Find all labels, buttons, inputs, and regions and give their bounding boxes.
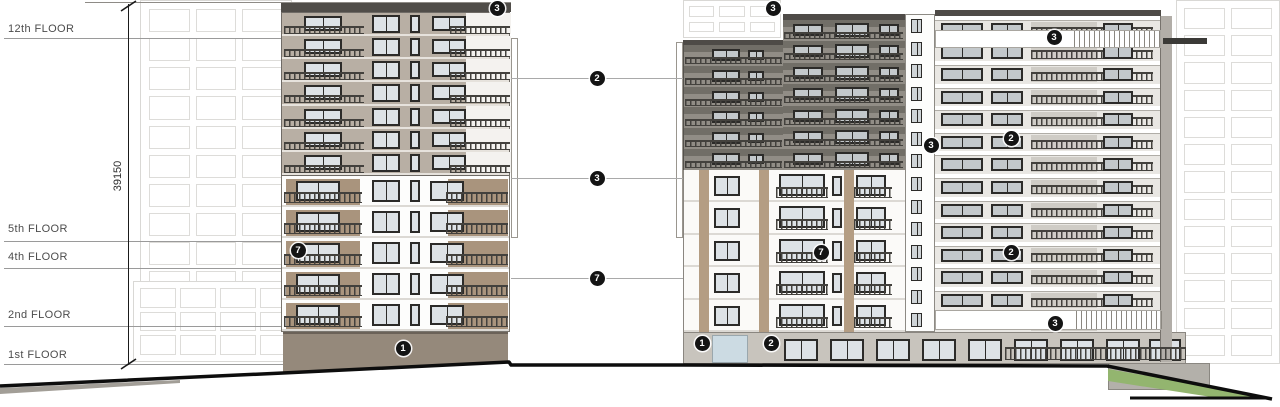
facade-floor-row	[783, 20, 905, 41]
facade-floor-row	[935, 242, 1161, 265]
balcony-railing	[784, 161, 903, 168]
callout-marker: 3	[490, 1, 505, 16]
window	[1103, 249, 1133, 262]
facade-accent-stripe	[759, 170, 769, 332]
balcony-railing	[776, 317, 828, 328]
balcony-railing	[450, 119, 510, 127]
balcony-railing	[284, 223, 362, 234]
balcony-railing	[284, 26, 364, 34]
balcony-railing	[284, 316, 362, 327]
background-window	[242, 155, 283, 178]
floor-label: 2nd FLOOR	[8, 309, 71, 321]
background-window	[196, 242, 237, 265]
balcony-railing	[284, 285, 362, 296]
callout-marker: 1	[695, 336, 710, 351]
background-window	[180, 335, 216, 355]
balcony-railing	[284, 72, 364, 80]
window	[1103, 136, 1133, 149]
balcony-railing	[1031, 275, 1153, 284]
ground-line	[0, 362, 1272, 399]
balcony-railing	[284, 49, 364, 57]
background-window	[689, 22, 714, 33]
window	[991, 158, 1023, 171]
facade-floor-row	[282, 269, 509, 300]
background-window	[220, 312, 256, 332]
background-window	[750, 22, 775, 33]
callout-marker: 3	[766, 1, 781, 16]
balcony-railing	[446, 223, 508, 234]
background-window	[1184, 62, 1225, 83]
facade-panel	[935, 197, 1161, 202]
facade-floor-row	[684, 149, 783, 170]
window	[941, 113, 983, 126]
background-window	[719, 22, 744, 33]
background-window	[1184, 253, 1225, 274]
window	[991, 204, 1023, 217]
balcony-railing	[450, 142, 510, 150]
facade-floor-row	[282, 152, 509, 175]
floor-leader-line	[4, 38, 283, 39]
window	[991, 226, 1023, 239]
facade-floor-row	[935, 151, 1161, 174]
facade-accent-stripe	[699, 170, 709, 332]
window	[372, 38, 400, 56]
facade-floor-row	[906, 309, 934, 332]
floor-leader-line	[4, 241, 283, 242]
window	[991, 113, 1023, 126]
window	[1103, 181, 1133, 194]
left-building-roof	[281, 3, 511, 12]
right-building-roof-c	[935, 10, 1161, 16]
window	[991, 68, 1023, 81]
window	[1103, 271, 1133, 284]
right-building-stair-tower	[905, 14, 935, 332]
window	[372, 180, 400, 202]
facade-panel	[935, 219, 1161, 224]
window	[911, 222, 922, 236]
window	[372, 154, 400, 172]
balcony-railing	[685, 78, 782, 85]
floor-leader-line	[4, 364, 283, 365]
balcony-railing	[450, 95, 510, 103]
background-window	[242, 67, 283, 90]
facade-panel	[935, 264, 1161, 269]
window	[911, 177, 922, 191]
left-building-lower-facade	[281, 176, 510, 332]
facade-floor-row	[906, 105, 934, 128]
balcony-railing	[784, 32, 903, 39]
floor-leader-line	[4, 326, 283, 327]
window	[410, 61, 420, 79]
background-window	[196, 67, 237, 90]
facade-floor-row	[684, 202, 905, 234]
elevation-drawing: 39150 12th FLOOR5th FLOOR4th FLOOR2nd FL…	[0, 0, 1280, 407]
facade-floor-row	[935, 61, 1161, 84]
background-window	[1184, 199, 1225, 220]
background-window	[196, 155, 237, 178]
window	[1103, 113, 1133, 126]
facade-floor-row	[684, 107, 783, 128]
background-window	[1231, 144, 1272, 165]
balcony-railing	[685, 57, 782, 64]
foundation-wall	[1108, 363, 1210, 390]
background-window	[242, 184, 283, 207]
callout-marker: 2	[1004, 245, 1019, 260]
background-window	[196, 184, 237, 207]
balcony-railing	[450, 26, 510, 34]
facade-floor-row	[684, 267, 905, 299]
background-window	[242, 96, 283, 119]
facade-floor-row	[935, 287, 1161, 310]
background-window	[1231, 308, 1272, 329]
facade-floor-row	[906, 38, 934, 61]
window	[911, 87, 922, 101]
callout-marker: 3	[924, 138, 939, 153]
background-window	[242, 38, 283, 61]
window	[911, 200, 922, 214]
window	[832, 306, 842, 326]
window	[941, 249, 983, 262]
callout-marker: 3	[590, 171, 605, 186]
callout-marker: 7	[590, 271, 605, 286]
balcony-railing	[1031, 140, 1153, 149]
facade-floor-row	[906, 241, 934, 264]
background-window	[1184, 117, 1225, 138]
balcony-railing	[450, 72, 510, 80]
balcony-railing	[1031, 230, 1153, 239]
background-window	[242, 126, 283, 149]
balcony-railing	[284, 95, 364, 103]
facade-panel	[935, 174, 1161, 179]
window	[410, 304, 420, 326]
background-window	[196, 213, 237, 236]
facade-floor-row	[282, 106, 509, 129]
window	[941, 271, 983, 284]
window	[911, 290, 922, 304]
background-window	[180, 288, 216, 308]
window	[372, 15, 400, 33]
background-window	[1184, 144, 1225, 165]
balcony-railing	[854, 284, 892, 295]
terrace-railing	[1005, 347, 1186, 360]
facade-floor-row	[783, 84, 905, 105]
facade-floor-row	[684, 128, 783, 149]
right-building-upper-facade-a	[683, 45, 783, 170]
balcony-railing	[854, 252, 892, 263]
callout-marker: 2	[590, 71, 605, 86]
floor-leader-line	[4, 268, 283, 269]
background-window	[140, 335, 176, 355]
background-building-right	[1176, 0, 1280, 364]
window	[991, 181, 1023, 194]
background-window	[220, 335, 256, 355]
facade-panel	[935, 61, 1161, 66]
window	[911, 245, 922, 259]
balcony-railing	[1031, 117, 1153, 126]
window	[941, 181, 983, 194]
facade-floor-row	[906, 196, 934, 219]
balcony-railing	[784, 118, 903, 125]
balcony-railing	[1031, 95, 1153, 104]
balcony-railing	[284, 165, 364, 173]
background-window	[1231, 117, 1272, 138]
facade-floor-row	[935, 197, 1161, 220]
window	[410, 242, 420, 264]
background-window	[1231, 280, 1272, 301]
callout-marker: 7	[814, 245, 829, 260]
facade-floor-row	[684, 66, 783, 87]
background-window	[1184, 308, 1225, 329]
facade-floor-row	[282, 13, 509, 36]
facade-floor-row	[906, 263, 934, 286]
louver-screen	[1074, 31, 1162, 47]
balcony-railing	[1031, 50, 1153, 59]
window	[1103, 226, 1133, 239]
window	[410, 211, 420, 233]
window	[941, 136, 983, 149]
background-window	[1231, 35, 1272, 56]
facade-floor-row	[783, 41, 905, 62]
facade-floor-row	[282, 207, 509, 238]
window	[911, 42, 922, 56]
background-window	[149, 96, 190, 119]
background-window	[1231, 253, 1272, 274]
balcony-railing	[854, 187, 892, 198]
facade-floor-row	[684, 45, 783, 66]
balcony-railing	[1031, 253, 1153, 262]
window	[714, 176, 740, 196]
background-podium-left	[133, 281, 303, 362]
window	[832, 273, 842, 293]
background-window	[149, 67, 190, 90]
background-window	[140, 312, 176, 332]
window	[372, 304, 400, 326]
balcony-railing	[450, 49, 510, 57]
window	[911, 313, 922, 327]
balcony-railing	[446, 316, 508, 327]
window	[911, 267, 922, 281]
window	[1103, 68, 1133, 81]
floor-label: 1st FLOOR	[8, 349, 67, 361]
balcony-railing	[284, 192, 362, 203]
right-building-lower-facade	[683, 170, 905, 332]
window	[714, 208, 740, 228]
balcony-railing	[446, 254, 508, 265]
background-window	[180, 312, 216, 332]
background-window	[1184, 171, 1225, 192]
background-window	[149, 213, 190, 236]
window	[372, 131, 400, 149]
window	[941, 204, 983, 217]
window	[372, 108, 400, 126]
balcony-railing	[784, 96, 903, 103]
background-window	[1231, 335, 1272, 356]
background-window	[196, 96, 237, 119]
background-window	[1184, 90, 1225, 111]
background-window	[1231, 171, 1272, 192]
background-window	[1231, 226, 1272, 247]
balcony-railing	[1031, 72, 1153, 81]
background-window	[1231, 90, 1272, 111]
background-window	[149, 184, 190, 207]
facade-floor-row	[282, 176, 509, 207]
window	[941, 158, 983, 171]
background-window	[1184, 335, 1225, 356]
background-window	[1184, 8, 1225, 29]
facade-floor-row	[282, 129, 509, 152]
facade-floor-row	[783, 149, 905, 170]
balcony-railing	[1031, 298, 1153, 307]
right-building-upper-facade-b	[783, 20, 905, 170]
window	[941, 68, 983, 81]
facade-floor-row	[935, 219, 1161, 242]
roof-canopy	[1163, 38, 1207, 44]
window	[911, 64, 922, 78]
callout-marker: 1	[396, 341, 411, 356]
window	[372, 84, 400, 102]
window	[911, 109, 922, 123]
window	[922, 339, 956, 361]
facade-panel	[935, 106, 1161, 111]
facade-floor-row	[935, 129, 1161, 152]
facade-panel	[935, 129, 1161, 134]
balcony-railing	[1031, 208, 1153, 217]
right-building-facade-c	[935, 16, 1161, 332]
background-window	[242, 242, 283, 265]
window	[714, 306, 740, 326]
balcony-railing	[446, 192, 508, 203]
window	[372, 273, 400, 295]
balcony-railing	[685, 161, 782, 168]
facade-floor-row	[906, 173, 934, 196]
louver-screen	[1076, 311, 1162, 329]
floor-label: 12th FLOOR	[8, 23, 74, 35]
window	[911, 132, 922, 146]
background-window	[149, 9, 190, 32]
background-window	[196, 126, 237, 149]
balcony-railing	[776, 284, 828, 295]
balcony-railing	[685, 99, 782, 106]
balcony-railing	[685, 119, 782, 126]
floor-label: 4th FLOOR	[8, 251, 68, 263]
window	[832, 176, 842, 196]
facade-floor-row	[282, 59, 509, 82]
window	[410, 108, 420, 126]
facade-accent-stripe	[844, 170, 854, 332]
facade-floor-row	[935, 84, 1161, 107]
background-window	[689, 6, 714, 17]
window	[1103, 91, 1133, 104]
balcony-railing	[446, 285, 508, 296]
left-building-edge-trim	[511, 38, 518, 238]
window	[911, 154, 922, 168]
window	[410, 154, 420, 172]
dimension-label: 39150	[112, 154, 124, 198]
facade-panel	[935, 84, 1161, 89]
window	[830, 339, 864, 361]
facade-floor-row	[906, 60, 934, 83]
facade-panel	[935, 16, 1161, 21]
background-window	[140, 288, 176, 308]
facade-panel	[935, 287, 1161, 292]
background-window	[1231, 199, 1272, 220]
window	[941, 226, 983, 239]
right-building-roof-a	[683, 40, 783, 45]
floor-label: 5th FLOOR	[8, 223, 68, 235]
facade-floor-row	[906, 286, 934, 309]
window	[968, 339, 1002, 361]
facade-floor-row	[935, 106, 1161, 129]
left-building-upper-facade	[281, 12, 510, 176]
facade-floor-row	[282, 300, 509, 331]
window	[1103, 204, 1133, 217]
facade-floor-row	[906, 83, 934, 106]
window	[991, 294, 1023, 307]
facade-floor-row	[684, 235, 905, 267]
background-window	[1231, 8, 1272, 29]
window	[1103, 158, 1133, 171]
window	[714, 241, 740, 261]
window	[832, 208, 842, 228]
facade-floor-row	[935, 174, 1161, 197]
callout-marker: 2	[764, 336, 779, 351]
balcony-railing	[776, 187, 828, 198]
callout-marker: 2	[1004, 131, 1019, 146]
facade-floor-row	[783, 106, 905, 127]
background-window	[1231, 62, 1272, 83]
facade-floor-row	[906, 218, 934, 241]
window	[410, 84, 420, 102]
background-window	[220, 288, 256, 308]
window	[410, 38, 420, 56]
right-building-roof-b	[783, 14, 905, 20]
window	[784, 339, 818, 361]
entrance-glazing	[712, 335, 748, 363]
window	[410, 131, 420, 149]
facade-floor-row	[684, 87, 783, 108]
background-window	[149, 38, 190, 61]
background-window	[1184, 226, 1225, 247]
facade-floor-row	[282, 82, 509, 105]
facade-floor-row	[783, 63, 905, 84]
background-window	[149, 126, 190, 149]
window	[410, 180, 420, 202]
callout-marker: 3	[1047, 30, 1062, 45]
facade-floor-row	[684, 170, 905, 202]
balcony-railing	[784, 139, 903, 146]
left-building-base	[283, 332, 508, 372]
facade-floor-row	[906, 15, 934, 38]
balcony-railing	[1031, 162, 1153, 171]
window	[876, 339, 910, 361]
balcony-railing	[854, 219, 892, 230]
balcony-railing	[784, 75, 903, 82]
callout-marker: 3	[1048, 316, 1063, 331]
window	[941, 294, 983, 307]
facade-panel	[935, 151, 1161, 156]
right-building-edge-trim	[676, 42, 683, 238]
window	[832, 241, 842, 261]
balcony-railing	[284, 142, 364, 150]
window	[410, 273, 420, 295]
window	[372, 211, 400, 233]
window	[410, 15, 420, 33]
balcony-railing	[685, 140, 782, 147]
window	[991, 271, 1023, 284]
window	[372, 242, 400, 264]
window	[911, 19, 922, 33]
facade-panel	[935, 242, 1161, 247]
